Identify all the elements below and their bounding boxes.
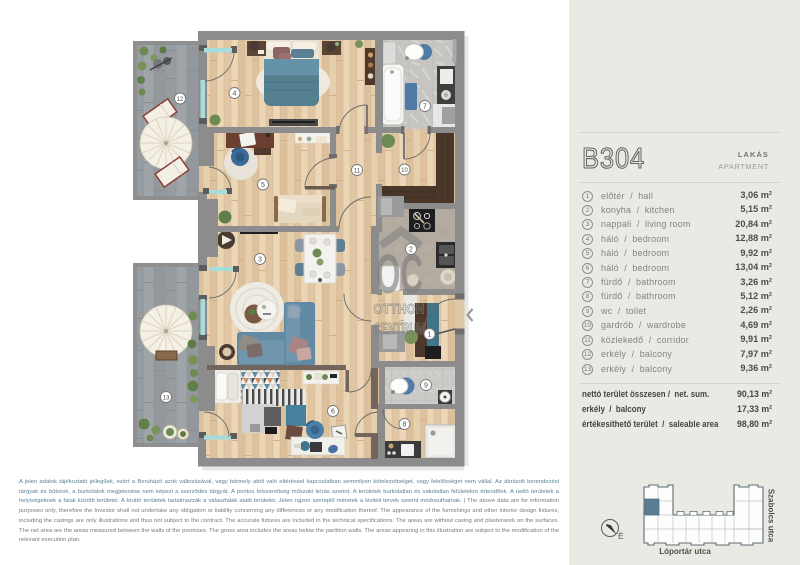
svg-text:8: 8 bbox=[403, 422, 407, 429]
svg-text:11: 11 bbox=[354, 169, 361, 175]
svg-text:10: 10 bbox=[401, 168, 408, 174]
svg-text:12: 12 bbox=[177, 97, 184, 103]
svg-text:3: 3 bbox=[258, 257, 262, 264]
svg-text:OTTHON: OTTHON bbox=[374, 301, 425, 317]
svg-text:CENTRUM: CENTRUM bbox=[374, 321, 426, 338]
svg-text:É: É bbox=[618, 531, 624, 541]
svg-text:7: 7 bbox=[423, 104, 427, 111]
svg-text:4: 4 bbox=[233, 91, 237, 98]
svg-text:6: 6 bbox=[331, 409, 335, 416]
svg-text:13: 13 bbox=[163, 396, 170, 402]
svg-text:1: 1 bbox=[428, 332, 432, 339]
svg-text:9: 9 bbox=[424, 383, 428, 390]
svg-text:5: 5 bbox=[261, 182, 265, 189]
svg-text:2: 2 bbox=[409, 247, 413, 254]
